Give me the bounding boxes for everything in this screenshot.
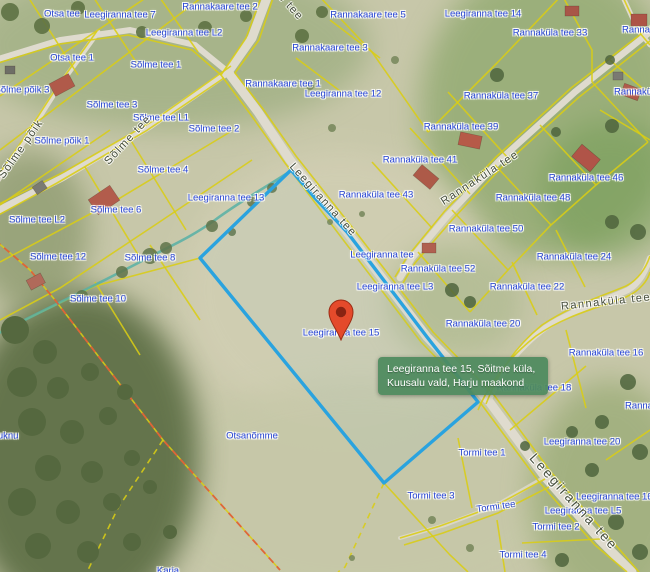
parcel-label: Rannakaare tee 2 (182, 2, 258, 13)
parcel-label: Otsanõmme (226, 431, 278, 442)
parcel-label: Rannaküla tee (625, 401, 650, 412)
parcel-label: Leegiranna tee 13 (188, 193, 265, 204)
parcel-label: Rannaküla tee 50 (449, 224, 523, 235)
parcel-label: Leegiranna tee 16 (576, 492, 650, 503)
parcel-label: Tormi tee 1 (459, 448, 506, 459)
parcel-label: Rannaküla tee (622, 25, 650, 36)
parcel-label: Rannaküla tee 33 (513, 28, 587, 39)
parcel-label: Sõlme põik 3 (0, 85, 49, 96)
parcel-label: Rannaküla tee 41 (383, 155, 457, 166)
parcel-label: Sõlme tee 4 (138, 165, 189, 176)
parcel-label: Sõlme tee 1 (131, 60, 182, 71)
map-canvas[interactable]: Otsa teeLeegiranna tee 7Rannakaare tee 2… (0, 0, 650, 572)
parcel-label: Rannaküla tee 22 (490, 282, 564, 293)
parcel-label: Rannaküla tee 37 (464, 91, 538, 102)
parcel-label: Leegiranna tee 12 (305, 89, 382, 100)
parcel-label: Rannaküla tee 24 (537, 252, 611, 263)
parcel-label: Otsa tee 1 (50, 53, 94, 64)
parcel-label: Sõlme tee 2 (189, 124, 240, 135)
parcel-label: Leegiranna tee 14 (445, 9, 522, 20)
tooltip-address-line2: Kuusalu vald, Harju maakond (387, 376, 539, 390)
parcel-label: Rannaküla tee 43 (339, 190, 413, 201)
parcel-label: Sõlme tee 6 (91, 205, 142, 216)
tooltip-address-line1: Leegiranna tee 15, Sõitme küla, (387, 362, 539, 376)
parcel-label: Leegiranna tee L3 (357, 282, 434, 293)
parcel-label: Kuknu (0, 431, 18, 442)
parcel-label: Rannaküla tee 20 (446, 319, 520, 330)
parcel-label: Rannaküla tee 52 (401, 264, 475, 275)
parcel-label: Rannaküla tee 39 (424, 122, 498, 133)
parcel-label: Sõlme tee 3 (87, 100, 138, 111)
parcel-label: Rannakaare tee 5 (330, 10, 406, 21)
parcel-label: Tormi tee 3 (408, 491, 455, 502)
parcel-label: Leegiranna tee (350, 250, 413, 261)
address-tooltip: Leegiranna tee 15, Sõitme küla, Kuusalu … (378, 357, 548, 395)
parcel-label: Leegiranna tee L2 (146, 28, 223, 39)
parcel-label: Leegiranna tee 7 (84, 10, 155, 21)
parcel-label: Sõlme tee 12 (30, 252, 86, 263)
parcel-label: Sõlme põik 1 (35, 136, 90, 147)
parcel-label: Tormi tee 4 (500, 550, 547, 561)
parcel-label: Sõlme tee 8 (125, 253, 176, 264)
location-pin-icon[interactable] (327, 299, 355, 341)
parcel-label: Karja (157, 566, 179, 572)
parcel-label: Rannaküla tee (614, 87, 650, 98)
parcel-label: Tormi tee 2 (533, 522, 580, 533)
parcel-label: Rannakaare tee 3 (292, 43, 368, 54)
parcel-label: Rannaküla tee 16 (569, 348, 643, 359)
parcel-label: Sõlme tee 10 (70, 294, 126, 305)
parcel-label: Sõlme tee L2 (9, 215, 65, 226)
parcel-label: Rannaküla tee 48 (496, 193, 570, 204)
parcel-label: Rannaküla tee 46 (549, 173, 623, 184)
parcel-label: Leegiranna tee 20 (544, 437, 621, 448)
parcel-label: Otsa tee (44, 9, 80, 20)
